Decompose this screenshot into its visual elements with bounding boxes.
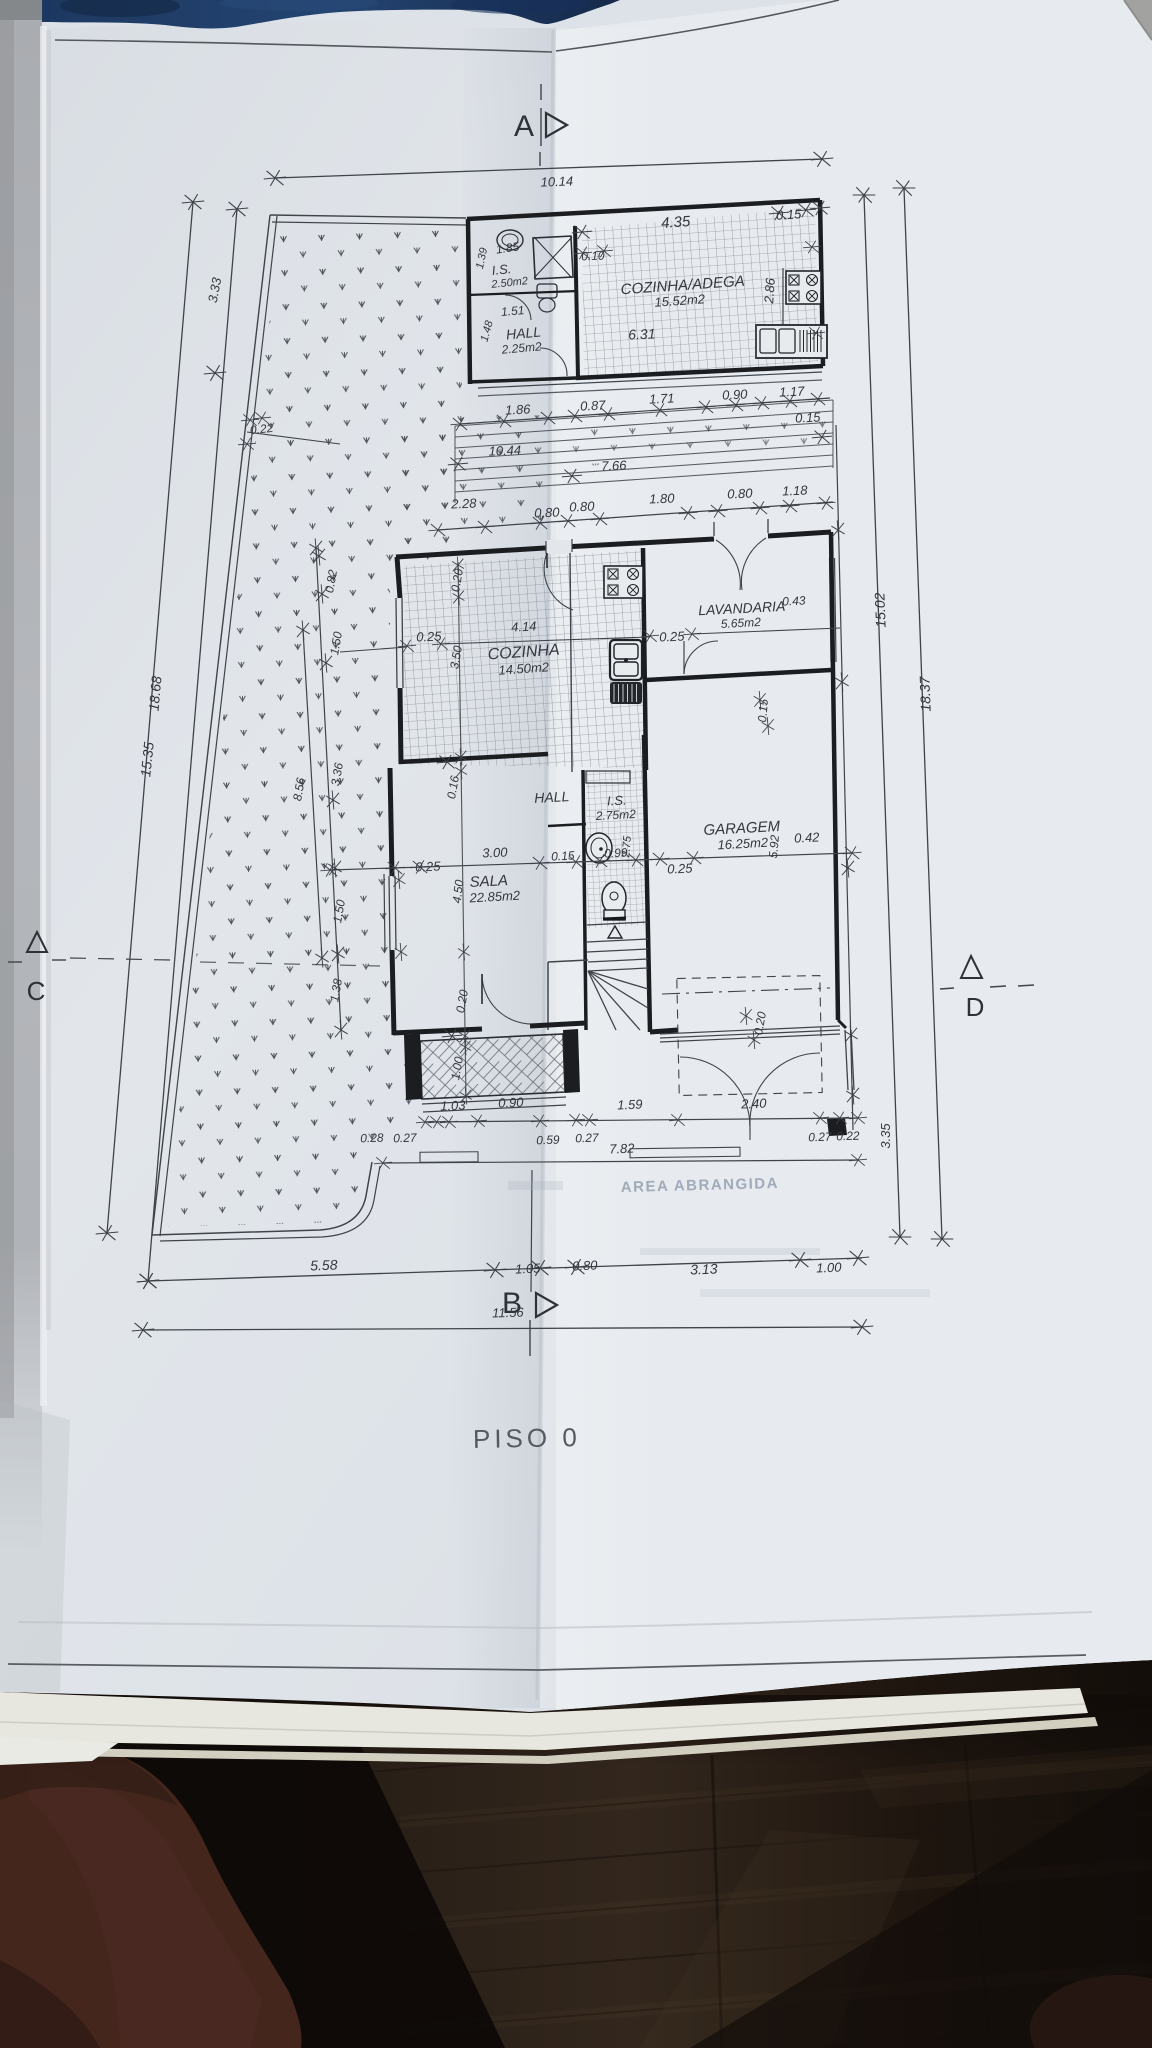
svg-text:16.25m2: 16.25m2: [717, 835, 769, 853]
svg-text:A: A: [514, 110, 534, 143]
svg-text:0.15: 0.15: [795, 409, 822, 425]
svg-text:18.37: 18.37: [916, 675, 933, 712]
svg-text:7.66: 7.66: [601, 458, 628, 474]
svg-text:4.35: 4.35: [661, 213, 692, 232]
svg-text:0.80: 0.80: [534, 505, 561, 521]
svg-text:0.80: 0.80: [572, 1257, 599, 1273]
svg-text:D: D: [966, 992, 985, 1022]
svg-text:I.S.: I.S.: [491, 261, 512, 278]
svg-text:0.90: 0.90: [722, 386, 749, 402]
svg-text:HALL: HALL: [534, 788, 570, 806]
svg-text:0.25: 0.25: [659, 629, 686, 645]
svg-text:0.59: 0.59: [536, 1133, 560, 1148]
svg-text:1.00: 1.00: [816, 1260, 843, 1276]
svg-text:0.22: 0.22: [836, 1129, 860, 1144]
svg-text:I.S.: I.S.: [607, 793, 627, 809]
svg-text:0.15: 0.15: [776, 206, 803, 223]
svg-text:1.86: 1.86: [505, 401, 532, 417]
svg-text:0.27: 0.27: [393, 1131, 418, 1146]
svg-text:18.68: 18.68: [146, 675, 165, 712]
svg-text:5.58: 5.58: [310, 1257, 338, 1274]
svg-text:3.35: 3.35: [878, 1123, 893, 1149]
svg-text:10.14: 10.14: [540, 173, 573, 189]
svg-text:3.13: 3.13: [690, 1261, 718, 1278]
svg-text:1.05: 1.05: [515, 1260, 542, 1276]
svg-text:1.51: 1.51: [500, 303, 524, 319]
svg-text:2.40: 2.40: [740, 1096, 768, 1112]
svg-text:11.56: 11.56: [492, 1304, 525, 1320]
svg-text:1.18: 1.18: [782, 483, 809, 499]
svg-text:15.02: 15.02: [871, 592, 888, 628]
svg-text:2.75m2: 2.75m2: [594, 807, 636, 823]
svg-text:0.87: 0.87: [580, 397, 607, 413]
svg-text:3.00: 3.00: [482, 845, 509, 861]
svg-text:0.15: 0.15: [551, 848, 575, 863]
svg-text:0.42: 0.42: [794, 829, 821, 845]
svg-text:4.14: 4.14: [511, 618, 537, 634]
svg-text:0.25: 0.25: [667, 861, 694, 877]
svg-text:2.28: 2.28: [450, 496, 478, 512]
svg-text:1.80: 1.80: [649, 491, 676, 507]
svg-text:0.80: 0.80: [727, 486, 754, 502]
svg-text:0.27: 0.27: [575, 1131, 600, 1146]
svg-text:0.90: 0.90: [498, 1095, 525, 1111]
svg-text:4.50: 4.50: [450, 879, 467, 904]
svg-text:0.28: 0.28: [360, 1131, 384, 1146]
svg-text:1.17: 1.17: [779, 383, 806, 399]
svg-text:0.99: 0.99: [604, 845, 628, 860]
svg-text:6.31: 6.31: [628, 326, 656, 343]
svg-text:1.59: 1.59: [617, 1097, 643, 1113]
svg-text:0.43: 0.43: [782, 593, 806, 608]
svg-text:C: C: [27, 976, 46, 1006]
svg-text:22.85m2: 22.85m2: [468, 888, 521, 906]
svg-text:0.27: 0.27: [808, 1130, 833, 1145]
svg-text:0.80: 0.80: [569, 499, 596, 515]
svg-text:1.03: 1.03: [440, 1098, 467, 1114]
svg-text:5.65m2: 5.65m2: [720, 615, 761, 631]
svg-text:2.86: 2.86: [761, 277, 778, 305]
svg-text:PISO 0: PISO 0: [473, 1422, 581, 1454]
svg-text:1.71: 1.71: [649, 390, 675, 406]
svg-text:10.44: 10.44: [488, 442, 521, 458]
